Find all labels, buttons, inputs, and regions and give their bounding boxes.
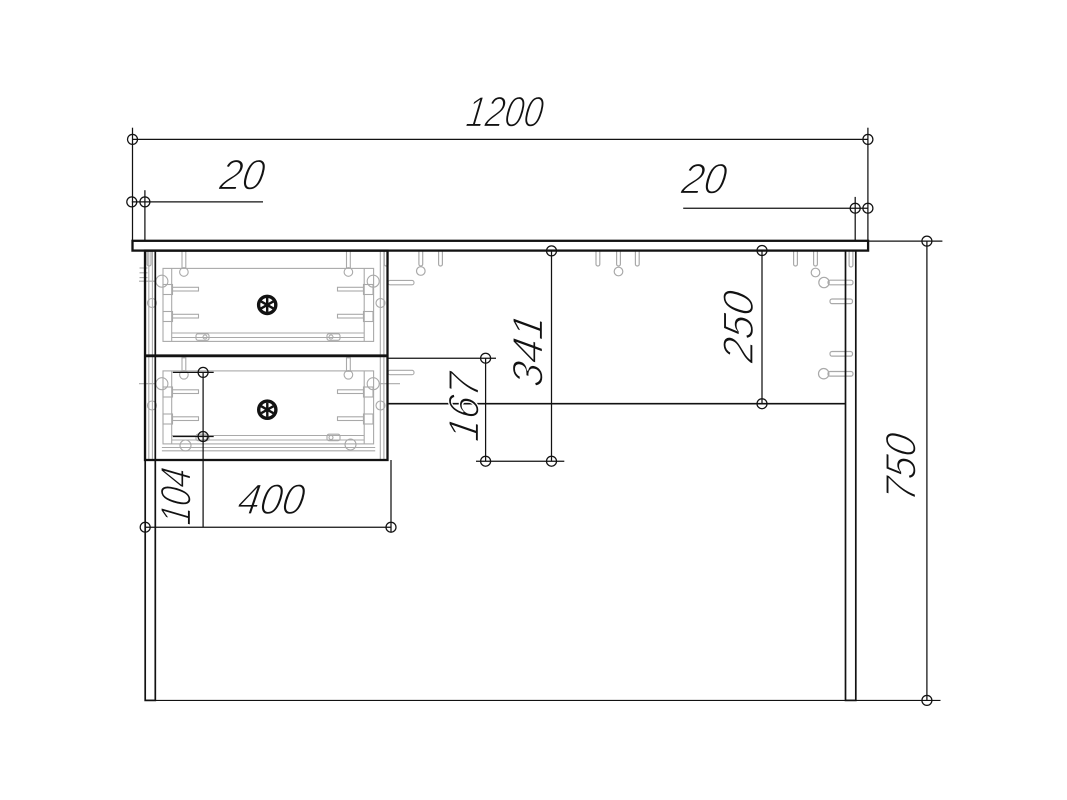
svg-text:20: 20 — [216, 150, 269, 199]
svg-text:400: 400 — [235, 475, 309, 524]
svg-text:20: 20 — [678, 154, 731, 203]
svg-text:750: 750 — [876, 429, 924, 504]
svg-text:250: 250 — [715, 287, 763, 367]
svg-text:167: 167 — [439, 368, 487, 444]
svg-text:341: 341 — [505, 311, 553, 390]
svg-text:104: 104 — [153, 465, 201, 527]
svg-text:1200: 1200 — [463, 89, 546, 136]
